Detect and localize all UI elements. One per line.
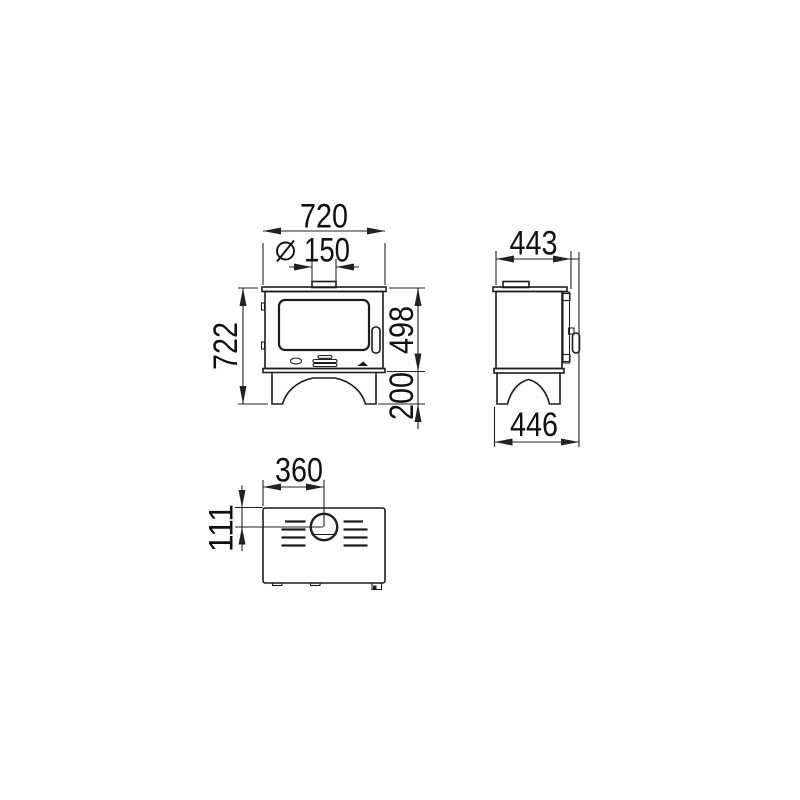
dim-front-width-value: 720	[300, 198, 348, 236]
dim-side-depth-top: 443	[496, 225, 579, 290]
front-brand-logo	[291, 358, 302, 364]
stove-dimension-drawing: 720 150 722 498	[0, 0, 800, 800]
front-body	[265, 292, 383, 369]
side-view: 443 446	[493, 225, 580, 448]
front-base-plate	[263, 369, 385, 373]
front-door-handle	[372, 327, 380, 353]
arrowhead-top	[240, 288, 247, 306]
side-legs	[497, 373, 560, 404]
dim-leg-height-value: 200	[383, 372, 421, 420]
grille-slot	[313, 364, 337, 367]
dim-top-flue-offset-x: 360	[263, 452, 324, 528]
front-hinge-top	[262, 303, 265, 310]
dim-body-height: 498	[383, 288, 425, 372]
dim-front-overall-height: 722	[207, 288, 268, 404]
dim-flue-diameter: 150	[277, 232, 359, 282]
dim-side-depth-bottom-value: 446	[510, 406, 558, 444]
top-handle-grip	[373, 586, 377, 590]
dimension-lines	[235, 486, 323, 552]
top-front-tab-left	[273, 583, 283, 586]
dim-flue-diameter-value: 150	[304, 232, 350, 270]
side-body	[496, 292, 562, 369]
side-base-plate	[494, 369, 564, 374]
top-view: 360 111	[203, 452, 386, 590]
top-door-handle	[372, 583, 382, 590]
arrowhead-right	[367, 228, 385, 235]
dim-top-flue-offset-x-value: 360	[275, 452, 323, 490]
dim-body-height-value: 498	[383, 306, 421, 354]
front-air-grille	[313, 356, 337, 367]
arrowhead-top	[415, 288, 422, 306]
front-door-window	[279, 300, 369, 350]
arrowhead-bottom	[415, 354, 422, 372]
dim-front-height-value: 722	[207, 322, 245, 370]
top-vent-slots-right	[344, 522, 368, 546]
front-view: 720 150 722 498	[207, 198, 425, 430]
top-front-tab-center	[311, 583, 321, 586]
grille-slot	[313, 360, 337, 363]
arrowhead-left	[263, 228, 281, 235]
grille-slot	[318, 356, 332, 359]
front-hinge-bottom	[262, 342, 265, 349]
diameter-symbol-slash	[277, 241, 294, 262]
vent-slot-lines	[344, 522, 368, 546]
front-legs	[272, 373, 376, 405]
technical-drawing-page: 720 150 722 498	[0, 0, 800, 800]
vent-slot-lines	[282, 522, 306, 546]
dim-top-flue-offset-y-value: 111	[203, 504, 241, 552]
front-door-latch	[357, 362, 368, 367]
arrowhead-bottom	[240, 386, 247, 404]
diameter-symbol	[277, 241, 294, 262]
dim-side-depth-top-value: 443	[510, 225, 558, 263]
dim-leg-height: 200	[378, 372, 425, 430]
top-vent-slots-left	[282, 522, 306, 546]
arrowhead-right	[561, 439, 579, 446]
